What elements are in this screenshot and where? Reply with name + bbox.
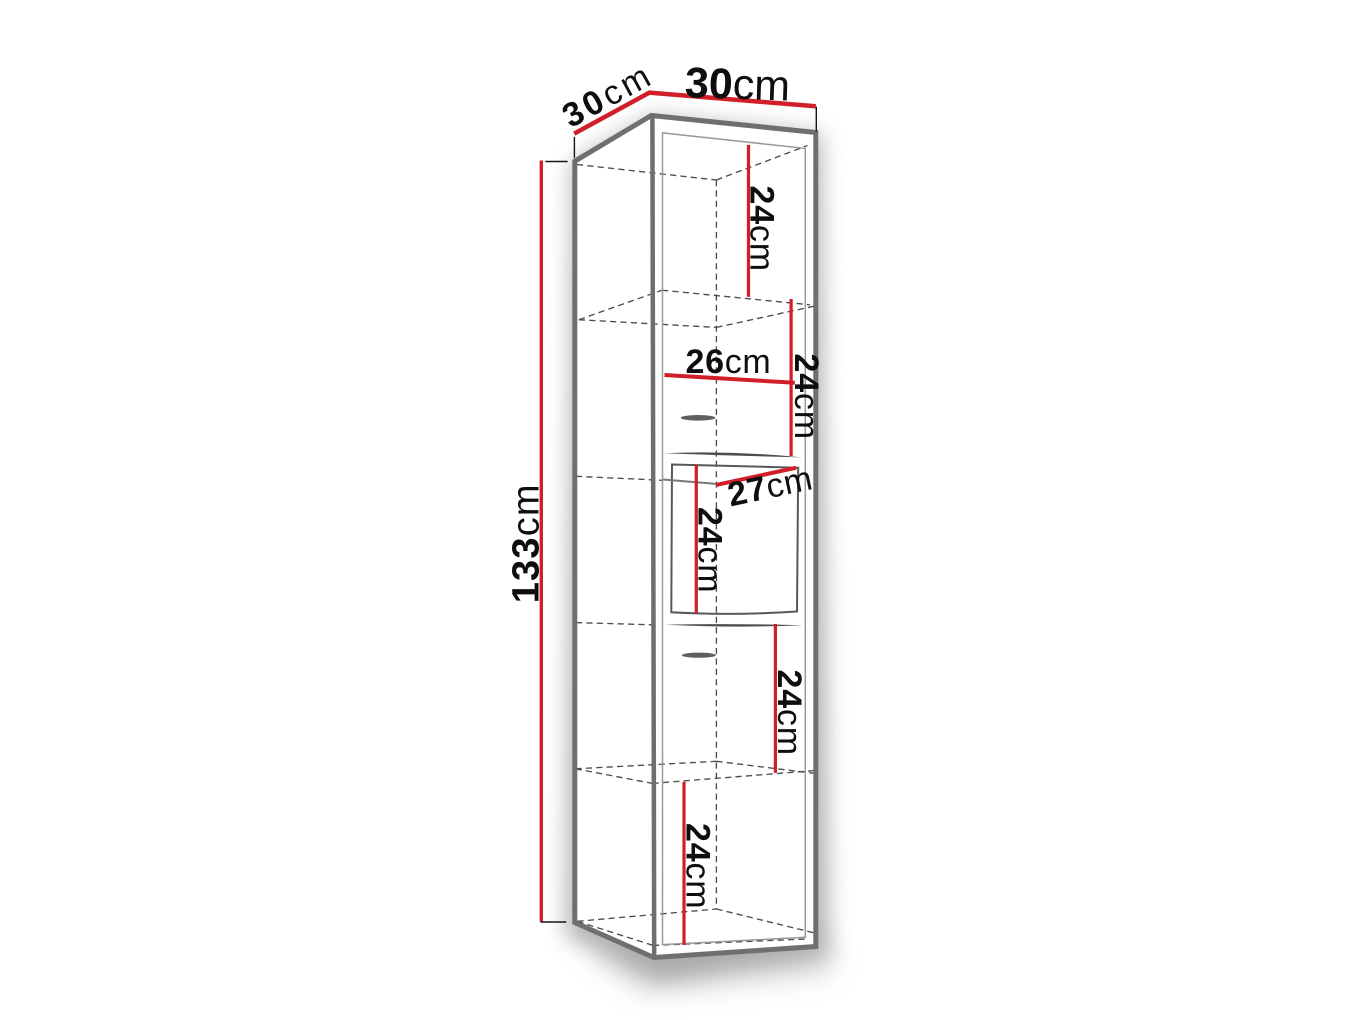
svg-text:24cm: 24cm <box>743 186 781 272</box>
svg-text:24cm: 24cm <box>679 823 717 909</box>
svg-text:30cm: 30cm <box>684 59 791 111</box>
svg-text:133cm: 133cm <box>506 483 548 603</box>
svg-text:24cm: 24cm <box>787 354 825 440</box>
svg-text:24cm: 24cm <box>691 507 729 593</box>
svg-text:24cm: 24cm <box>770 670 808 756</box>
svg-text:26cm: 26cm <box>686 343 772 381</box>
